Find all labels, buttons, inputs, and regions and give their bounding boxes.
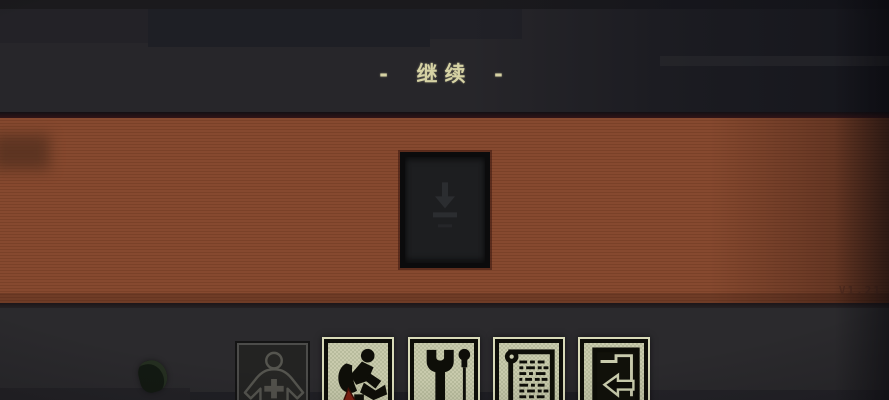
glitch-patch xyxy=(0,9,148,43)
toolbar-journal-button[interactable] xyxy=(493,337,565,400)
door-arrow-icon xyxy=(587,346,645,400)
toolbar-backpack-button[interactable] xyxy=(322,337,394,400)
continue-menu-title[interactable]: - 继续 - xyxy=(0,58,889,88)
save-slot-card[interactable] xyxy=(400,152,490,268)
glitch-patch xyxy=(650,390,889,400)
toolbar-character-button[interactable] xyxy=(237,343,308,400)
glitch-patch xyxy=(148,9,430,47)
shade-right xyxy=(709,118,889,303)
download-arrow-icon xyxy=(422,174,468,240)
scroll-list-icon xyxy=(502,346,560,400)
shade-bottom xyxy=(0,293,889,303)
person-plus-icon xyxy=(243,349,305,400)
version-label: V1.21 xyxy=(839,284,882,297)
glitch-patch xyxy=(0,388,190,400)
toolbar-tools-button[interactable] xyxy=(408,337,480,400)
backpack-hiker-icon xyxy=(331,346,389,400)
shade-smudge xyxy=(0,134,50,170)
game-screen: - 继续 - V1.21 xyxy=(0,0,889,400)
wrench-screwdriver-icon xyxy=(417,346,475,400)
toolbar-exit-button[interactable] xyxy=(578,337,650,400)
